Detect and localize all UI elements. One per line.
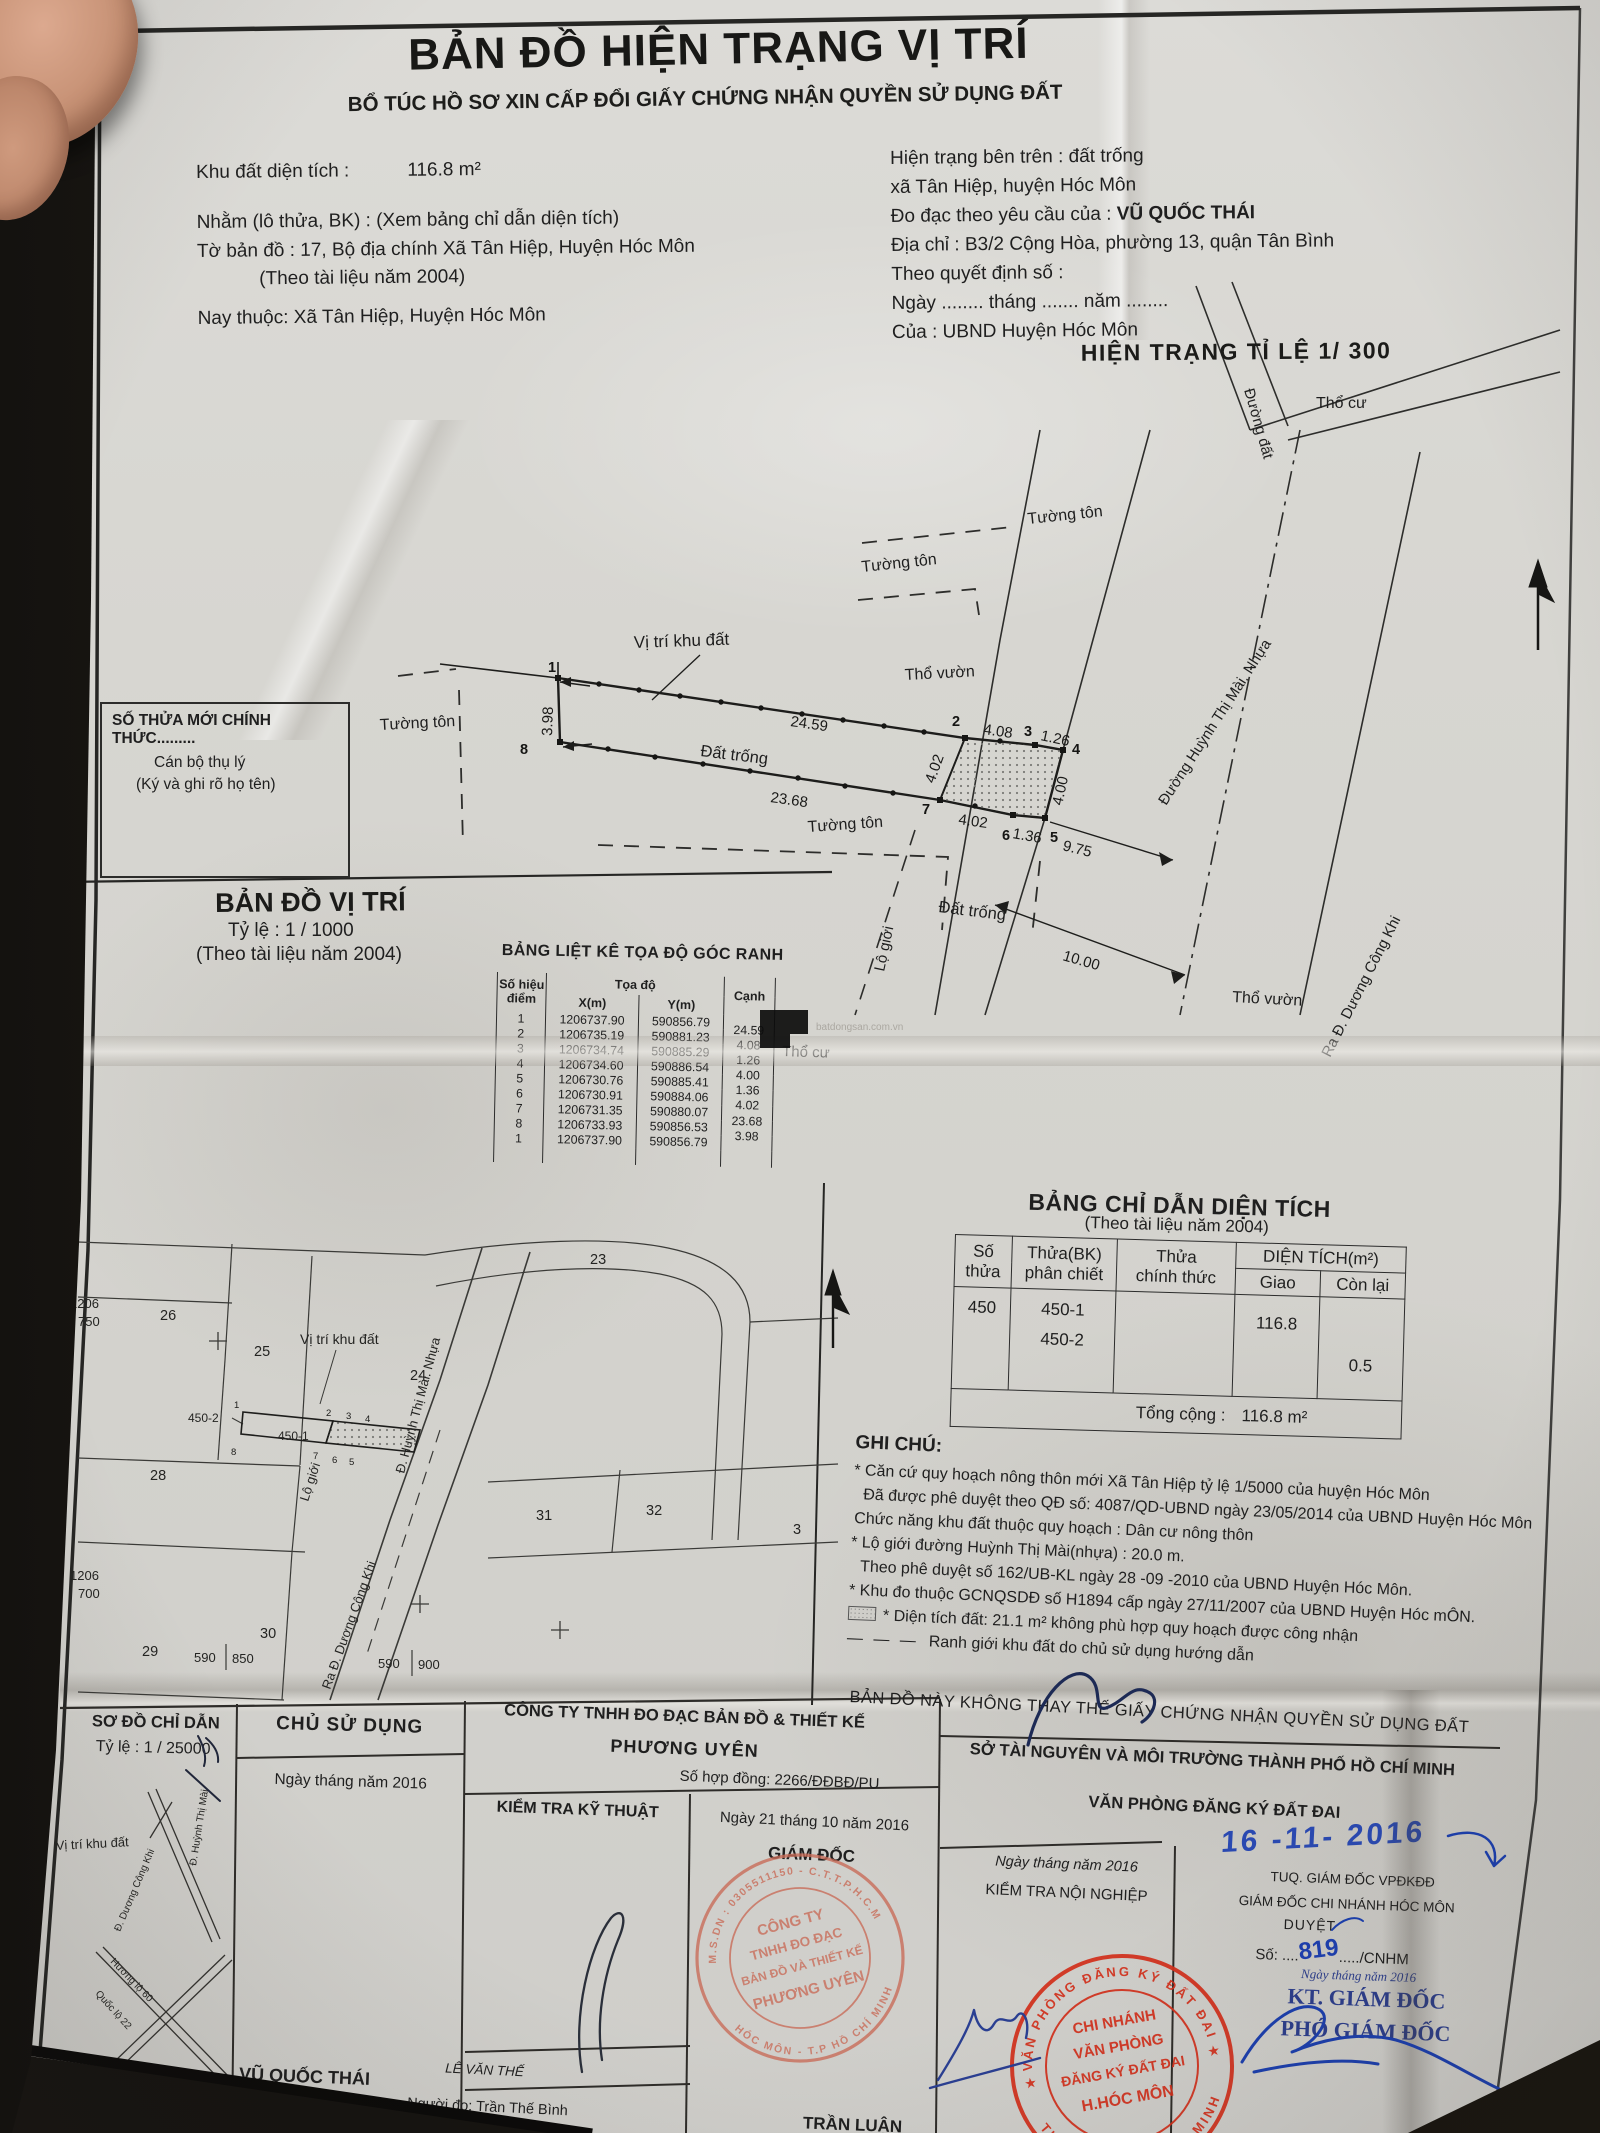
- signature-tech-check: [579, 1913, 623, 2072]
- office-stamp-star-right: ★: [1207, 2043, 1220, 2059]
- company-red-stamp: M.S.DN : 0305511150 - C.T.T.P.H.C.M HÓC …: [674, 1832, 926, 2084]
- signature-duyet-initial: [1332, 1918, 1363, 1930]
- office-stamp-star-left: ★: [1024, 2075, 1037, 2091]
- pen-mark-scale: [186, 1736, 220, 1801]
- scanned-land-survey-document: Vị trí khu đất Đất trống Thổ vườn Thổ cư…: [0, 0, 1600, 2133]
- stamps-and-signatures: M.S.DN : 0305511150 - C.T.T.P.H.C.M HÓC …: [0, 0, 1600, 2133]
- black-watermark-blob: [760, 1010, 808, 1048]
- pen-arrow-doodle: [1448, 1833, 1505, 1866]
- signature-deputy-director: [1242, 2007, 1524, 2100]
- signature-over-header: [1028, 1674, 1155, 1745]
- office-red-stamp: VĂN PHÒNG ĐĂNG KÝ ĐẤT ĐAI THÀNH PHỐ HỒ C…: [995, 1939, 1250, 2133]
- office-stamp-line4: H.HÓC MÔN: [1080, 2081, 1175, 2116]
